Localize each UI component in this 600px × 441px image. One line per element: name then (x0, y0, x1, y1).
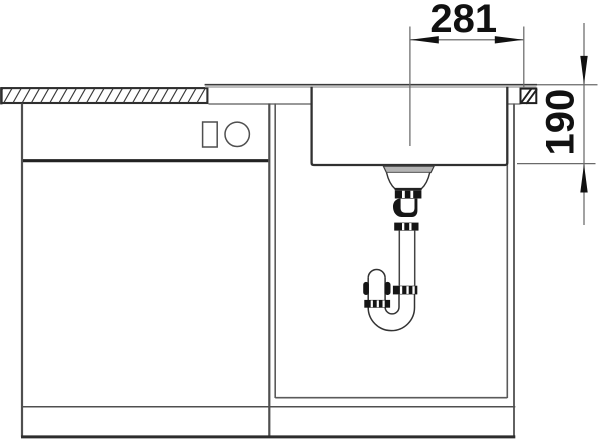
svg-text:190: 190 (538, 89, 582, 156)
svg-text:281: 281 (430, 0, 497, 41)
